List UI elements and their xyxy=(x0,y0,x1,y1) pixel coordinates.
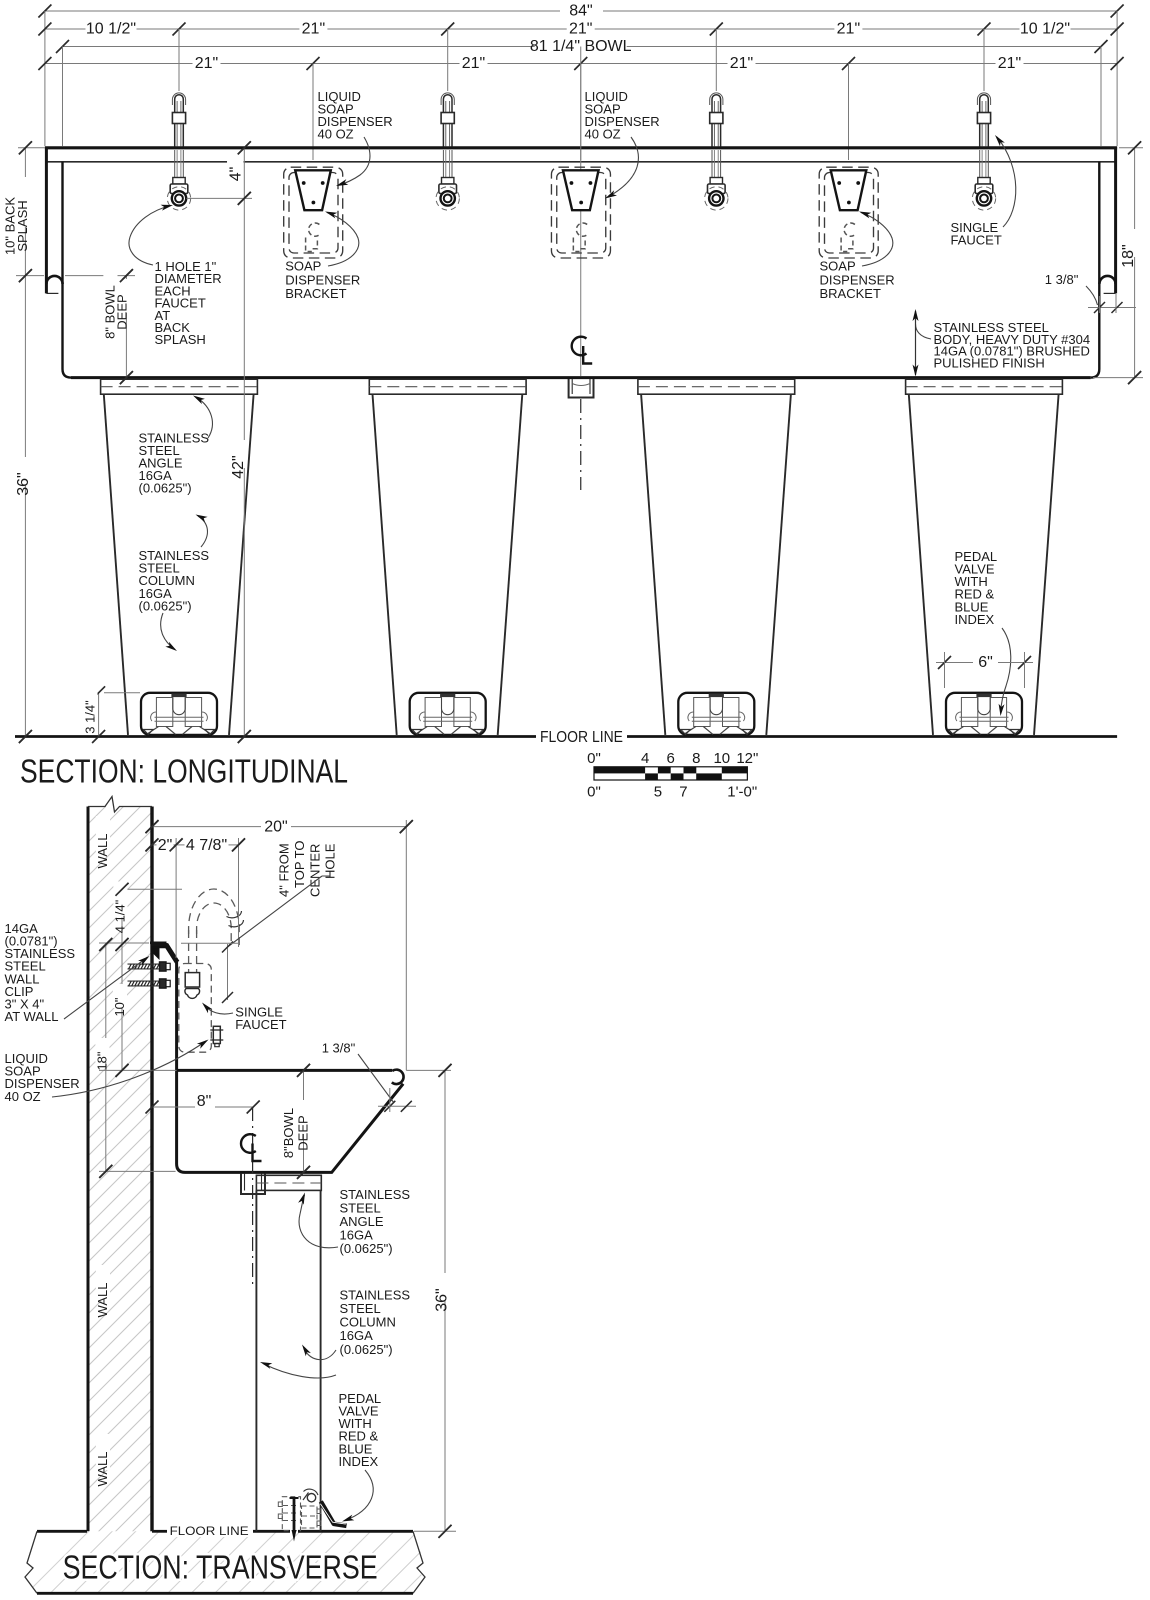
svg-text:40 OZ: 40 OZ xyxy=(318,127,354,142)
svg-text:4: 4 xyxy=(641,750,649,767)
svg-text:BRACKET: BRACKET xyxy=(285,286,346,301)
svg-text:(0.0625"): (0.0625") xyxy=(340,1241,393,1256)
svg-text:4 1/4": 4 1/4" xyxy=(113,899,128,933)
svg-text:36": 36" xyxy=(434,1288,451,1311)
svg-text:42": 42" xyxy=(230,455,247,478)
svg-text:6": 6" xyxy=(978,654,993,671)
svg-text:BRACKET: BRACKET xyxy=(820,286,881,301)
svg-text:40 OZ: 40 OZ xyxy=(5,1089,41,1104)
svg-text:84": 84" xyxy=(569,3,592,20)
svg-text:FAUCET: FAUCET xyxy=(235,1017,286,1032)
svg-text:SPLASH: SPLASH xyxy=(155,332,206,347)
svg-text:4 7/8": 4 7/8" xyxy=(186,837,227,854)
svg-text:4": 4" xyxy=(228,167,245,182)
svg-text:1'-0": 1'-0" xyxy=(727,784,757,801)
svg-text:(0.0625"): (0.0625") xyxy=(340,1342,393,1357)
svg-text:FLOOR LINE: FLOOR LINE xyxy=(540,729,623,746)
svg-text:(0.0625"): (0.0625") xyxy=(139,481,192,496)
svg-text:10 1/2": 10 1/2" xyxy=(1020,21,1070,38)
svg-text:INDEX: INDEX xyxy=(955,612,995,627)
svg-text:21": 21" xyxy=(195,55,218,72)
svg-text:21": 21" xyxy=(998,55,1021,72)
svg-text:18": 18" xyxy=(1120,244,1137,267)
svg-text:DISPENSER: DISPENSER xyxy=(285,272,360,287)
svg-text:WALL: WALL xyxy=(95,1283,110,1318)
svg-text:SOAP: SOAP xyxy=(285,258,321,273)
svg-text:21": 21" xyxy=(730,55,753,72)
svg-text:SOAP: SOAP xyxy=(820,258,856,273)
svg-text:21": 21" xyxy=(837,21,860,38)
svg-text:DISPENSER: DISPENSER xyxy=(820,272,895,287)
svg-text:FAUCET: FAUCET xyxy=(951,232,1002,247)
svg-text:FLOOR LINE: FLOOR LINE xyxy=(170,1524,249,1538)
svg-text:INDEX: INDEX xyxy=(339,1454,379,1469)
svg-text:40 OZ: 40 OZ xyxy=(585,127,621,142)
svg-text:21": 21" xyxy=(462,55,485,72)
svg-text:20": 20" xyxy=(264,818,287,835)
svg-text:5: 5 xyxy=(654,784,662,801)
svg-text:8: 8 xyxy=(692,750,700,767)
svg-text:AT WALL: AT WALL xyxy=(5,1009,59,1024)
svg-text:8": 8" xyxy=(197,1093,212,1110)
svg-text:4" FROM: 4" FROM xyxy=(277,843,292,897)
svg-text:10 1/2": 10 1/2" xyxy=(86,21,136,38)
svg-text:36": 36" xyxy=(15,472,32,495)
svg-text:WALL: WALL xyxy=(95,1452,110,1487)
svg-text:1 3/8": 1 3/8" xyxy=(1045,272,1079,287)
svg-text:21": 21" xyxy=(302,21,325,38)
svg-text:(0.0625"): (0.0625") xyxy=(139,598,192,613)
svg-text:12": 12" xyxy=(736,750,758,767)
svg-text:0": 0" xyxy=(587,784,601,801)
svg-text:10: 10 xyxy=(713,750,730,767)
svg-text:HOLE: HOLE xyxy=(323,843,338,879)
svg-text:DEEP: DEEP xyxy=(296,1115,311,1150)
svg-text:8"BOWL: 8"BOWL xyxy=(281,1108,296,1158)
svg-text:0": 0" xyxy=(587,750,601,767)
svg-text:CENTER: CENTER xyxy=(308,844,323,897)
svg-text:DEEP: DEEP xyxy=(115,294,130,329)
svg-text:SPLASH: SPLASH xyxy=(15,200,30,251)
svg-text:SECTION: LONGITUDINAL: SECTION: LONGITUDINAL xyxy=(20,753,348,790)
svg-text:TOP TO: TOP TO xyxy=(292,841,307,888)
svg-text:10": 10" xyxy=(112,997,127,1016)
svg-text:6: 6 xyxy=(667,750,675,767)
svg-text:3 1/4": 3 1/4" xyxy=(83,700,98,734)
svg-text:WALL: WALL xyxy=(95,834,110,869)
svg-text:7: 7 xyxy=(679,784,687,801)
svg-text:21": 21" xyxy=(569,21,592,38)
svg-text:18": 18" xyxy=(95,1051,110,1070)
svg-text:PULISHED FINISH: PULISHED FINISH xyxy=(934,356,1045,371)
svg-text:1 3/8": 1 3/8" xyxy=(322,1041,356,1056)
svg-text:SECTION: TRANSVERSE: SECTION: TRANSVERSE xyxy=(63,1549,378,1586)
